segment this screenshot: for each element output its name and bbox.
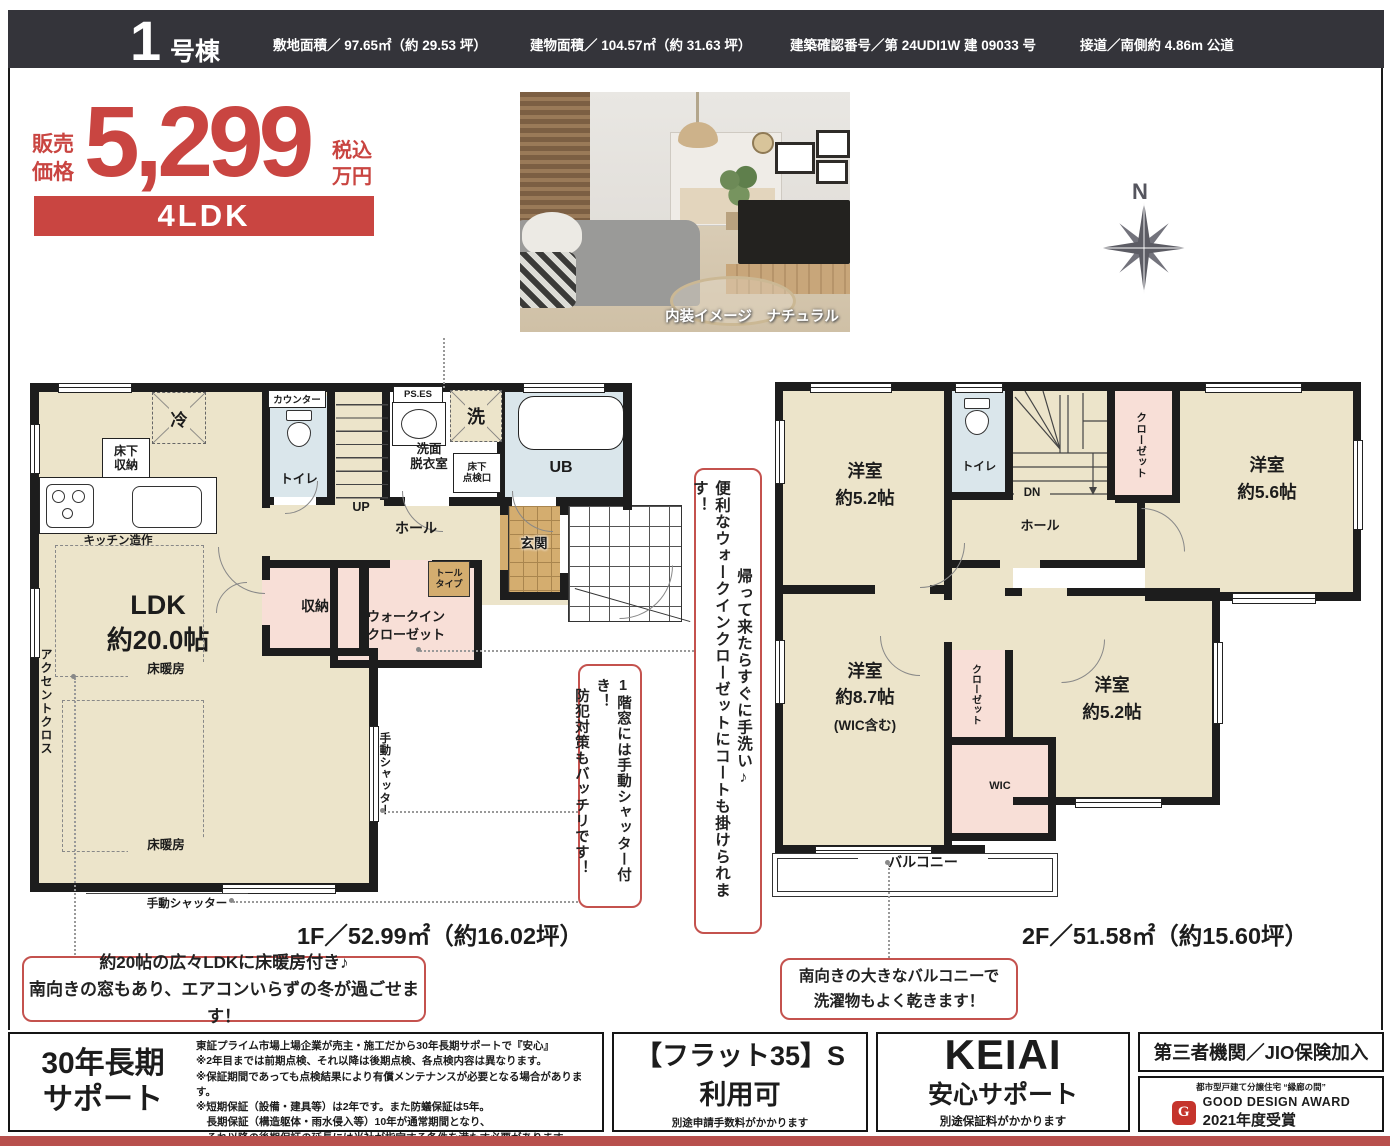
wic-line2: クローゼット (367, 627, 445, 642)
wash-basin (392, 402, 446, 446)
leader-line (384, 811, 578, 813)
spec-road: 接道／南側約 4.86m 公道 (1080, 34, 1234, 54)
sale-label-line1: 販売 (32, 133, 74, 156)
flat35-note: 別途申請手数料がかかります (672, 1115, 809, 1130)
callout-balcony-line1: 南向きの大きなバルコニーで (799, 964, 999, 989)
floor-heating-label-1: 床暖房 (128, 662, 204, 678)
wic-line1: ウォークイン (367, 609, 445, 624)
burner (62, 508, 73, 519)
award-year: 2021年度受賞 (1203, 1109, 1351, 1130)
photo-pendant-cord (696, 92, 699, 124)
flyer-page: 1 号棟 敷地面積／ 97.65㎡（約 29.53 坪） 建物面積／ 104.5… (0, 0, 1390, 1146)
callout-balcony-note: 南向きの大きなバルコニーで 洗濯物もよく乾きます！ (780, 958, 1018, 1020)
plan-badge: 4LDK (34, 196, 374, 236)
wall (327, 392, 335, 505)
photo-wall-frame-3 (816, 160, 848, 184)
wall (944, 492, 1013, 500)
gooddesign-award: 都市型戸建て分譲住宅 “縁廊の間” G GOOD DESIGN AWARD 20… (1138, 1076, 1384, 1132)
unit-suffix: 号棟 (170, 32, 220, 68)
room-52b-line2: 約5.2帖 (1082, 702, 1141, 722)
leader-line (420, 650, 694, 652)
sale-label-line2: 価格 (32, 161, 74, 184)
room-56-label: 洋室 約5.6帖 (1192, 452, 1342, 506)
window (775, 420, 785, 484)
footer-box-support: 30年長期 サポート 東証プライム市場上場企業が売主・施工だから30年長期サポー… (8, 1032, 604, 1132)
window (1205, 383, 1302, 393)
jio-title-box: 第三者機関／JIO保険加入 (1138, 1032, 1384, 1072)
gmark-logo-icon: G (1172, 1101, 1196, 1125)
stairs-up-label: UP (338, 500, 384, 516)
underfloor-line1: 床下 (114, 444, 138, 458)
wall (1005, 391, 1013, 500)
flat35-title-line1: 【フラット35】S (635, 1034, 845, 1073)
support-note: ※2年目までは前期点検、それ以降は後期点検、各点検内容は異なります。 (196, 1054, 598, 1069)
price-amount: 5,299 (84, 80, 309, 205)
leader-dot (229, 898, 234, 903)
floor-heating-label-2: 床暖房 (128, 838, 204, 854)
support-title-line2: サポート (43, 1082, 163, 1118)
photo-pendant-lamp (678, 122, 718, 148)
washer-label: 洗 (465, 403, 487, 429)
photo-cushion-1 (522, 212, 582, 256)
room-87-line1: 洋室 (848, 661, 883, 681)
unit-number: 1 (130, 8, 161, 73)
door-opening (560, 515, 568, 573)
toilet-label-1f: トイレ (272, 472, 326, 488)
accent-cross-label: アクセントクロス (38, 626, 53, 778)
closet-top-label: クローゼット (1134, 398, 1147, 492)
photo-wall-clock (752, 132, 774, 154)
toilet-icon (286, 410, 312, 447)
burner (72, 490, 85, 503)
floor1-title: 1F／52.99㎡（約16.02坪） (255, 922, 625, 951)
door-opening (1000, 560, 1040, 568)
window (1232, 593, 1316, 604)
callout-wic-note: 帰って来たらすぐに手洗い♪ 便利なウォークインクローゼットにコートも掛けられます… (694, 468, 762, 934)
room-52a-line2: 約5.2帖 (835, 488, 894, 508)
leader-line (74, 678, 76, 958)
hall-label-1f: ホール (386, 520, 446, 538)
keiai-brand: KEIAI (944, 1035, 1061, 1075)
washroom-line1: 洗面 (416, 442, 441, 456)
hall-label-2f: ホール (1000, 518, 1080, 534)
floor-heating-area (62, 700, 204, 852)
keiai-title: 安心サポート (928, 1075, 1078, 1111)
counter-label-box: カウンター (268, 390, 326, 408)
wall (1172, 391, 1180, 500)
wall (1115, 495, 1180, 503)
page-frame-left (8, 68, 10, 1030)
stove (46, 484, 94, 528)
support-note: ※保証期間であっても点検結果により有償メンテナンスが必要となる場合があります。 (196, 1070, 598, 1101)
room-87-line3: (WIC含む) (834, 718, 896, 733)
callout-shutter-col2: 防犯対策もバッチリです！ (571, 678, 592, 894)
photo-cushion-2 (520, 252, 576, 308)
wall (1005, 650, 1013, 745)
wall (944, 560, 1145, 568)
photo-tv (738, 200, 850, 264)
washer-space: 洗 (450, 390, 502, 442)
toilet-label-2f: トイレ (948, 460, 1010, 474)
room-2f-corridor (952, 560, 1013, 650)
photo-wall-frame-2 (816, 130, 850, 158)
door-opening (1022, 588, 1067, 596)
window (810, 383, 892, 393)
room-52b-label: 洋室 約5.2帖 (1042, 672, 1182, 726)
floor-hatch-box: 床下点検口 (453, 453, 501, 493)
flat35-title-line2: 利用可 (700, 1073, 781, 1112)
award-text: GOOD DESIGN AWARD 2021年度受賞 (1203, 1095, 1351, 1130)
wall (944, 737, 1056, 745)
underfloor-storage-box: 床下収納 (102, 438, 150, 480)
award-name: GOOD DESIGN AWARD (1203, 1095, 1351, 1109)
leader-line (888, 864, 890, 958)
callout-ldk-note: 約20帖の広々LDKに床暖房付き♪ 南向きの窓もあり、エアコンいらずの冬が過ごせ… (22, 956, 426, 1022)
ub-label: UB (536, 458, 586, 478)
award-row: G GOOD DESIGN AWARD 2021年度受賞 (1140, 1095, 1382, 1130)
wic-label-1f: ウォークイン クローゼット (342, 608, 470, 643)
wall (1107, 391, 1115, 500)
photo-caption: 内装イメージ ナチュラル (658, 308, 846, 326)
wall (500, 592, 568, 600)
wic-label-2f: WIC (972, 780, 1028, 794)
window (955, 383, 1003, 393)
window (1075, 798, 1162, 808)
stairs-up (336, 392, 388, 510)
footer-box-keiai: KEIAI 安心サポート 別途保証料がかかります (876, 1032, 1130, 1132)
photo-wall-frame-1 (775, 142, 815, 174)
callout-wic-col1: 帰って来たらすぐに手洗い♪ (732, 480, 754, 922)
room-52a-line1: 洋室 (848, 461, 883, 481)
floor-heating-area (55, 545, 204, 677)
room-56-line2: 約5.6帖 (1237, 482, 1296, 502)
leader-line (443, 338, 445, 388)
floor2-title: 2F／51.58㎡（約15.60坪） (985, 922, 1345, 951)
window (1213, 642, 1223, 724)
ps-es-label-box: PS.ES (393, 386, 443, 403)
wall (1048, 737, 1056, 841)
tax-label-line1: 税込 (332, 140, 372, 162)
leader-line (233, 901, 578, 903)
compass-rose: N (1098, 178, 1190, 298)
support-note: ※短期保証（設備・建具等）は2年です。また防蟻保証は5年。 (196, 1100, 598, 1115)
callout-ldk-line2: 南向きの窓もあり、エアコンいらずの冬が過ごせます！ (24, 976, 424, 1030)
wall (623, 383, 632, 510)
tax-label-line2: 万円 (332, 166, 372, 188)
window (1353, 440, 1363, 530)
support-title: 30年長期 サポート (10, 1034, 196, 1130)
wall (267, 648, 369, 656)
callout-wic-col2: 便利なウォークインクローゼットにコートも掛けられます！ (688, 480, 732, 922)
room-56-line1: 洋室 (1250, 455, 1285, 475)
shutter-label-bottom: 手動シャッター (132, 897, 242, 911)
stairs-down-label: DN (1014, 486, 1050, 500)
support-note: 長期保証（構造躯体・雨水侵入等）10年が通常期間となり、 (196, 1115, 598, 1130)
keiai-note: 別途保証料がかかります (940, 1113, 1067, 1129)
callout-balcony-line2: 洗濯物もよく乾きます！ (814, 989, 985, 1014)
support-notes: 東証プライム市場上場企業が売主・施工だから30年長期サポートで『安心』 ※2年目… (196, 1034, 602, 1130)
room-52b-line1: 洋室 (1095, 675, 1130, 695)
window (30, 424, 40, 474)
footer-box-flat35: 【フラット35】S 利用可 別途申請手数料がかかります (612, 1032, 868, 1132)
washroom-line2: 脱衣室 (410, 457, 448, 471)
leader-dot (71, 674, 76, 679)
tall-line2: タイプ (435, 579, 462, 589)
room-87-line2: 約8.7帖 (835, 687, 894, 707)
window (58, 383, 132, 393)
tall-line1: トール (435, 568, 462, 578)
support-title-line1: 30年長期 (41, 1046, 164, 1082)
balcony-label: バルコニー (858, 854, 988, 872)
toilet-icon (964, 398, 990, 435)
award-tag: 都市型戸建て分譲住宅 “縁廊の間” (1140, 1081, 1382, 1093)
sale-label: 販売 価格 (32, 131, 74, 187)
support-note: 東証プライム市場上場企業が売主・施工だから30年長期サポートで『安心』 (196, 1039, 598, 1054)
spec-building-area: 建物面積／ 104.57㎡（約 31.63 坪） (530, 34, 751, 54)
leader-dot (885, 860, 890, 865)
compass-star-icon (1098, 200, 1190, 296)
shutter-bracket-line (86, 893, 248, 894)
fridge-space: 冷 (152, 392, 206, 444)
underfloor-line2: 収納 (114, 458, 138, 472)
door-opening (390, 560, 432, 568)
interior-photo: 内装イメージ ナチュラル (520, 92, 850, 332)
fridge-label: 冷 (169, 406, 190, 431)
burner (52, 490, 65, 503)
stairs-down (1013, 391, 1107, 500)
hatch-line1: 床下 (467, 462, 486, 473)
wall (330, 660, 482, 668)
door-opening (500, 515, 508, 570)
callout-shutter-col1: 1階窓には手動シャッター付き！ (592, 678, 634, 894)
door-opening (944, 600, 952, 642)
bottom-red-bar (0, 1136, 1390, 1146)
kitchen-sink (132, 486, 202, 528)
genkan-label: 玄関 (510, 536, 558, 553)
tall-type-box: トールタイプ (428, 561, 470, 597)
room-52a-label: 洋室 約5.2帖 (800, 458, 930, 512)
header-bar: 1 号棟 敷地面積／ 97.65㎡（約 29.53 坪） 建物面積／ 104.5… (8, 10, 1384, 68)
callout-shutter-note: 1階窓には手動シャッター付き！ 防犯対策もバッチリです！ (578, 664, 642, 908)
window (523, 383, 605, 393)
leader-dot (416, 647, 421, 652)
closet-mid-label: クローゼット (968, 655, 981, 735)
spec-confirmation-number: 建築確認番号／第 24UDI1W 建 09033 号 (790, 34, 1036, 54)
window (775, 640, 785, 704)
wall (944, 833, 1056, 841)
room-87-label: 洋室 約8.7帖 (WIC含む) (795, 658, 935, 737)
hatch-line2: 点検口 (463, 473, 492, 484)
spec-land-area: 敷地面積／ 97.65㎡（約 29.53 坪） (273, 34, 487, 54)
callout-ldk-line1: 約20帖の広々LDKに床暖房付き♪ (99, 949, 348, 976)
bathtub (518, 396, 624, 450)
leader-dot (380, 808, 385, 813)
photo-window-blinds (520, 92, 590, 227)
tax-label: 税込 万円 (332, 138, 372, 190)
storage-label: 収納 (284, 598, 346, 616)
page-frame-right (1381, 68, 1383, 1030)
